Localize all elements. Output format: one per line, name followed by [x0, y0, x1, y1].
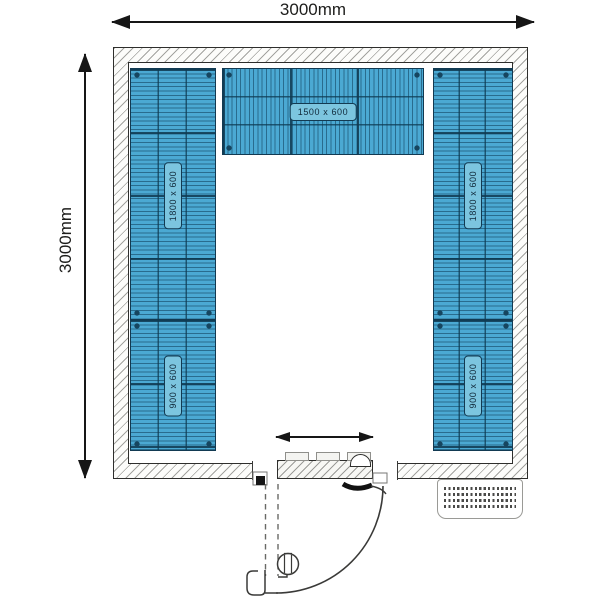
door-clearance-double-arrow-icon	[276, 436, 373, 438]
door-frame-right	[373, 473, 387, 483]
shelf-label-right-upper: 1800 x 600	[464, 163, 482, 230]
shelf-label-right-lower: 900 x 600	[464, 356, 482, 417]
door-swing-arc	[276, 486, 383, 593]
door-lock-icon	[278, 554, 299, 575]
cold-room-floor-plan: 3000mm 3000mm 1500 x 600 1800 x 600 900 …	[0, 0, 600, 600]
vent-grille-icon	[444, 487, 516, 511]
height-dimension-label: 3000mm	[56, 207, 76, 273]
door-hinge-pivot-icon	[256, 476, 265, 485]
width-dimension-double-arrow-icon	[112, 21, 534, 23]
shelf-label-top: 1500 x 600	[290, 103, 357, 121]
door-latch-icon	[343, 484, 372, 488]
width-dimension-label: 3000mm	[280, 0, 346, 20]
shelf-label-left-upper: 1800 x 600	[164, 163, 182, 230]
refrigeration-unit	[437, 479, 523, 519]
door-swing-drawing	[240, 450, 410, 600]
door-pull-handle	[247, 570, 265, 595]
shelf-label-left-lower: 900 x 600	[164, 356, 182, 417]
height-dimension-double-arrow-icon	[84, 54, 86, 478]
